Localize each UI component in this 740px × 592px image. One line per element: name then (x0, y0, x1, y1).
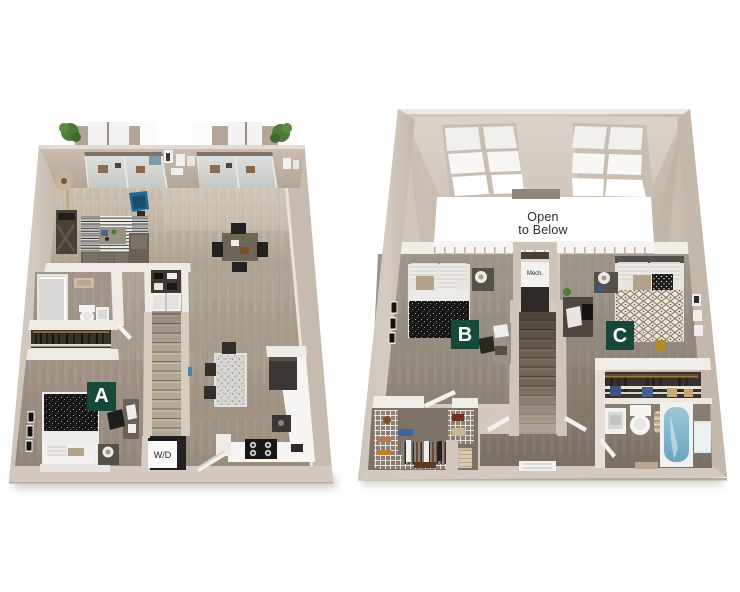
svg-text:A: A (94, 385, 108, 407)
svg-text:B: B (458, 324, 472, 346)
svg-text:Mech.: Mech. (527, 271, 544, 277)
svg-text:Open: Open (527, 210, 558, 224)
svg-text:to Below: to Below (518, 223, 568, 237)
svg-text:W/D: W/D (154, 450, 172, 460)
svg-text:C: C (613, 325, 627, 347)
